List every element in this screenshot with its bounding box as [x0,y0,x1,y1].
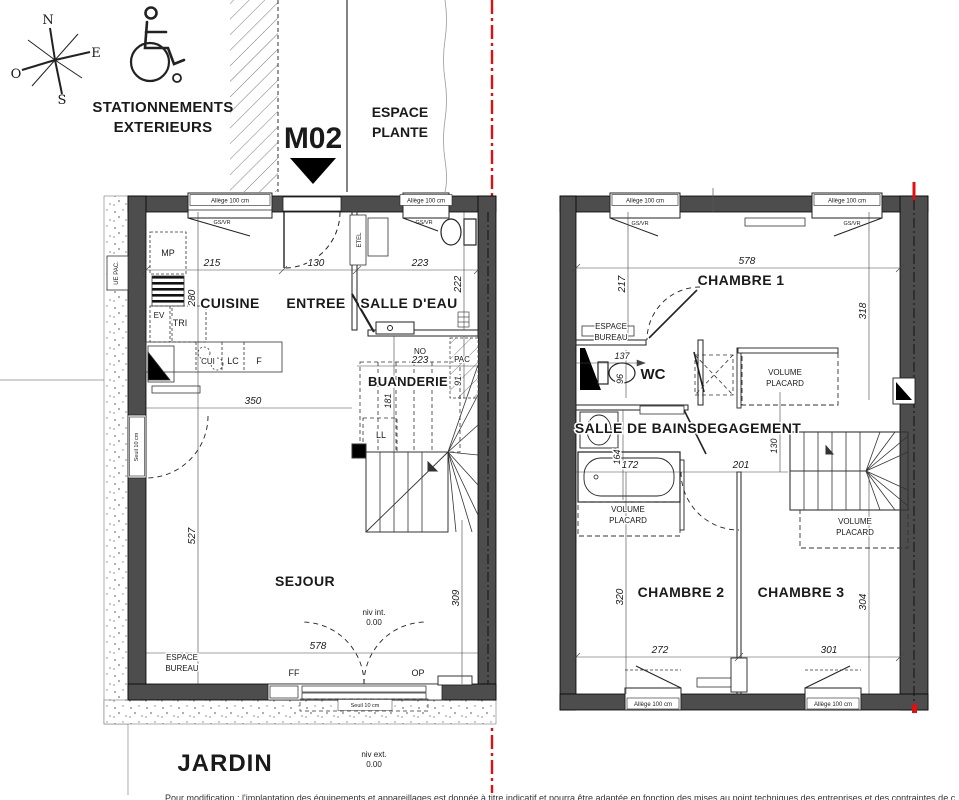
room-salle-deau: SALLE D'EAU [360,295,457,311]
footer-note: Pour modification : l'implantation des é… [165,793,955,800]
placard2-line1: VOLUME [611,505,645,514]
red-axis-tick-bottom [912,704,917,713]
dim-ff-578: 578 [739,256,756,267]
placard2-line2: PLACARD [609,516,647,525]
gf-exterior-walls [128,196,496,700]
placard1-line2: PLACARD [766,379,804,388]
dim-ff-272: 272 [651,645,669,656]
room-chambre3: CHAMBRE 3 [758,584,845,600]
label-tri: TRI [173,318,188,328]
gf-window-1-sill-label: Allège 100 cm [211,199,249,205]
level-int-label: niv int. [362,608,385,617]
room-sejour: SEJOUR [275,573,335,589]
etel-label: ETEL [357,232,363,248]
gf-toilet-icon [441,219,476,245]
dim-223a: 223 [411,258,429,269]
gf-washbasin-icon [376,322,414,334]
label-lc: LC [227,356,239,366]
ff-window-3: Allège 100 cm [625,666,681,710]
label-f: F [256,356,262,366]
dim-280: 280 [187,289,198,307]
room-wc: WC [641,366,666,383]
dim-ff-164: 164 [612,449,622,464]
dim-578: 578 [310,641,327,652]
parking-label-line2: EXTERIEURS [114,119,213,136]
ff-window-1-sill-label: Allège 100 cm [626,199,664,205]
dim-ff-304: 304 [858,593,869,610]
entrance-arrow-icon [290,158,336,184]
ff-shelf [640,406,684,414]
compass-south: S [58,93,67,108]
gf-window-2-shutter-label: GS/VR [415,220,432,226]
room-chambre2: CHAMBRE 2 [638,584,725,600]
dim-ff-172: 172 [622,460,639,471]
compass-west: O [11,67,22,82]
dim-ff-318: 318 [858,302,869,319]
compass-north: N [42,13,53,28]
dim-ff-301: 301 [821,645,838,656]
ff-window-2: Allège 100 cm GS/VR [812,193,882,236]
unit-label: M02 [284,122,342,155]
ff-duct-niche [893,378,915,404]
dim-181: 181 [383,393,393,408]
site-boundaries [230,0,447,192]
dim-ff-130: 130 [769,438,779,453]
planted-label-line2: PLANTE [372,124,428,140]
ff-window-2-shutter-label: GS/VR [843,221,860,227]
room-degagement: DEGAGEMENT [697,420,801,436]
dim-309: 309 [451,589,462,606]
level-int-value: 0.00 [366,618,382,627]
label-cui: CUI [201,357,215,366]
dim-ff-96: 96 [615,374,625,384]
ff-window-3-sill-label: Allège 100 cm [634,702,672,708]
first-floor-plan: Allège 100 cm GS/VR Allège 100 cm GS/VR … [560,182,928,713]
ff-window-2-sill-label: Allège 100 cm [828,199,866,205]
gf-towel-radiator-icon [458,312,469,327]
dim-130: 130 [308,258,325,269]
label-op: OP [411,668,424,678]
plan-drawing: N E O S STATIONNEMENTS EXTERIEURS M02 ES… [0,0,959,800]
gf-terrace-threshold-label: Seuil 10 cm [351,703,380,709]
gf-espace-bureau-line2: BUREAU [165,664,199,673]
ff-window-4-sill-label: Allège 100 cm [814,702,852,708]
room-jardin: JARDIN [177,750,272,777]
room-chambre1: CHAMBRE 1 [698,272,785,288]
dim-527: 527 [187,527,198,544]
heat-pump-unit-label: UE PAC. [114,261,120,285]
dim-ff-320: 320 [615,588,626,605]
compass-rose: N E O S [11,13,101,108]
hatched-strip [230,0,278,192]
label-pac: PAC [454,355,470,364]
ff-window-1: Allège 100 cm GS/VR [610,193,680,236]
placard3-line1: VOLUME [838,517,872,526]
wheelchair-icon [131,8,184,83]
dim-ff-201: 201 [732,460,750,471]
label-ll: LL [376,430,386,440]
dim-ff-137: 137 [614,351,630,361]
dim-222: 222 [453,275,464,293]
floor-plan-sheet: N E O S STATIONNEMENTS EXTERIEURS M02 ES… [0,0,959,800]
placard3-line2: PLACARD [836,528,874,537]
ff-radiator-top [745,218,805,226]
parking-label-line1: STATIONNEMENTS [92,99,233,116]
dim-223b: 223 [411,355,429,366]
gf-dimensions [142,212,482,684]
gf-window-1-shutter-label: GS/VR [213,220,230,226]
gf-espace-bureau-line1: ESPACE [166,653,198,662]
dim-ff-217: 217 [617,275,628,293]
gf-window-1: Allège 100 cm GS/VR [188,193,272,236]
level-ext-label: niv ext. [361,750,386,759]
ff-radiator-bottom [697,678,733,687]
room-salle-de-bains: SALLE DE BAINS [575,420,697,436]
label-mp: MP [161,248,175,258]
dim-215: 215 [203,258,221,269]
ff-window-1-shutter-label: GS/VR [631,221,648,227]
ground-floor-plan: Allège 100 cm GS/VR Allège 100 cm GS/VR … [0,193,496,795]
compass-east: E [91,46,101,61]
room-buanderie: BUANDERIE [368,374,448,389]
planted-boundary-line [444,0,447,192]
planted-label-line1: ESPACE [372,104,429,120]
ff-espace-bureau-line2: BUREAU [594,333,628,342]
ff-espace-bureau-line1: ESPACE [595,322,627,331]
room-cuisine: CUISINE [200,295,260,311]
label-ff: FF [289,668,300,678]
gf-window-2-sill-label: Allège 100 cm [407,199,445,205]
ff-stairs [790,432,908,510]
level-ext-value: 0.00 [366,760,382,769]
label-no: NO [414,347,426,356]
ff-window-4: Allège 100 cm [805,666,861,710]
dim-350: 350 [245,396,262,407]
dim-91: 91 [453,376,463,386]
gf-french-doors: Seuil 10 cm [268,622,472,711]
etel-cabinet [350,215,388,265]
gf-side-door-threshold-label: Seuil 10 cm [134,432,140,461]
label-ev: EV [154,311,165,320]
gf-garden-side-door: Seuil 10 cm [128,415,208,478]
placard1-line1: VOLUME [768,368,802,377]
room-entree: ENTREE [286,295,345,311]
